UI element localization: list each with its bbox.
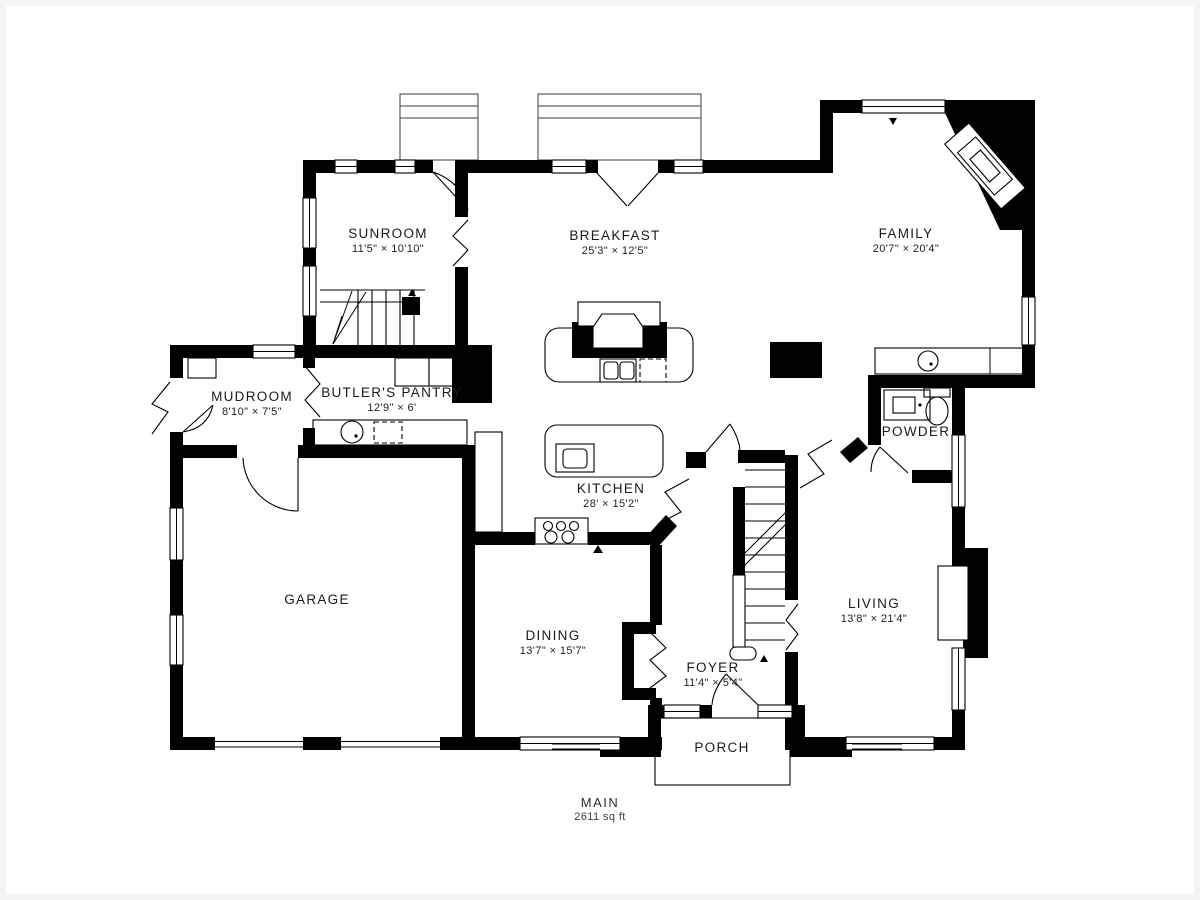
room-name: POWDER (882, 424, 951, 441)
room-label-garage: GARAGE (284, 592, 350, 609)
room-name: FOYER (683, 660, 742, 677)
room-name: DINING (520, 628, 586, 645)
floorplan-page: SUNROOM 11'5" × 10'10" BREAKFAST 25'3" ×… (0, 0, 1200, 900)
room-label-butlers-pantry: BUTLER'S PANTRY 12'9" × 6' (321, 385, 463, 416)
room-dims: 12'9" × 6' (321, 402, 463, 416)
room-dims: 13'8" × 21'4" (841, 613, 907, 627)
floorplan-drawing (0, 0, 1200, 900)
room-label-family: FAMILY 20'7" × 20'4" (873, 226, 939, 257)
room-label-mudroom: MUDROOM 8'10" × 7'5" (211, 389, 293, 420)
room-name: KITCHEN (577, 481, 645, 498)
room-name: SUNROOM (348, 226, 428, 243)
room-label-porch: PORCH (694, 740, 749, 757)
room-label-living: LIVING 13'8" × 21'4" (841, 596, 907, 627)
room-dims: 25'3" × 12'5" (569, 245, 660, 259)
room-name: BUTLER'S PANTRY (321, 385, 463, 402)
room-label-kitchen: KITCHEN 28' × 15'2" (577, 481, 645, 512)
room-dims: 8'10" × 7'5" (211, 406, 293, 420)
living-fireplace (938, 566, 968, 640)
room-label-powder: POWDER (882, 424, 951, 441)
floor-summary-label: MAIN 2611 sq ft (574, 795, 626, 825)
room-label-breakfast: BREAKFAST 25'3" × 12'5" (569, 228, 660, 259)
room-label-foyer: FOYER 11'4" × 5'4" (683, 660, 742, 691)
room-dims: 13'7" × 15'7" (520, 645, 586, 659)
room-label-sunroom: SUNROOM 11'5" × 10'10" (348, 226, 428, 257)
room-name: FAMILY (873, 226, 939, 243)
floor-name: MAIN (574, 795, 626, 811)
room-dims: 20'7" × 20'4" (873, 243, 939, 257)
room-dims: 28' × 15'2" (577, 498, 645, 512)
room-name: PORCH (694, 740, 749, 757)
room-dims: 11'5" × 10'10" (348, 243, 428, 257)
room-name: LIVING (841, 596, 907, 613)
powder-fixtures (884, 388, 950, 425)
room-dims: 11'4" × 5'4" (683, 677, 742, 691)
floor-area: 2611 sq ft (574, 811, 626, 825)
room-label-dining: DINING 13'7" × 15'7" (520, 628, 586, 659)
room-name: MUDROOM (211, 389, 293, 406)
back-stairs (320, 290, 425, 345)
room-name: BREAKFAST (569, 228, 660, 245)
room-name: GARAGE (284, 592, 350, 609)
deck-outlines (400, 94, 701, 160)
doors-openings (152, 172, 908, 705)
